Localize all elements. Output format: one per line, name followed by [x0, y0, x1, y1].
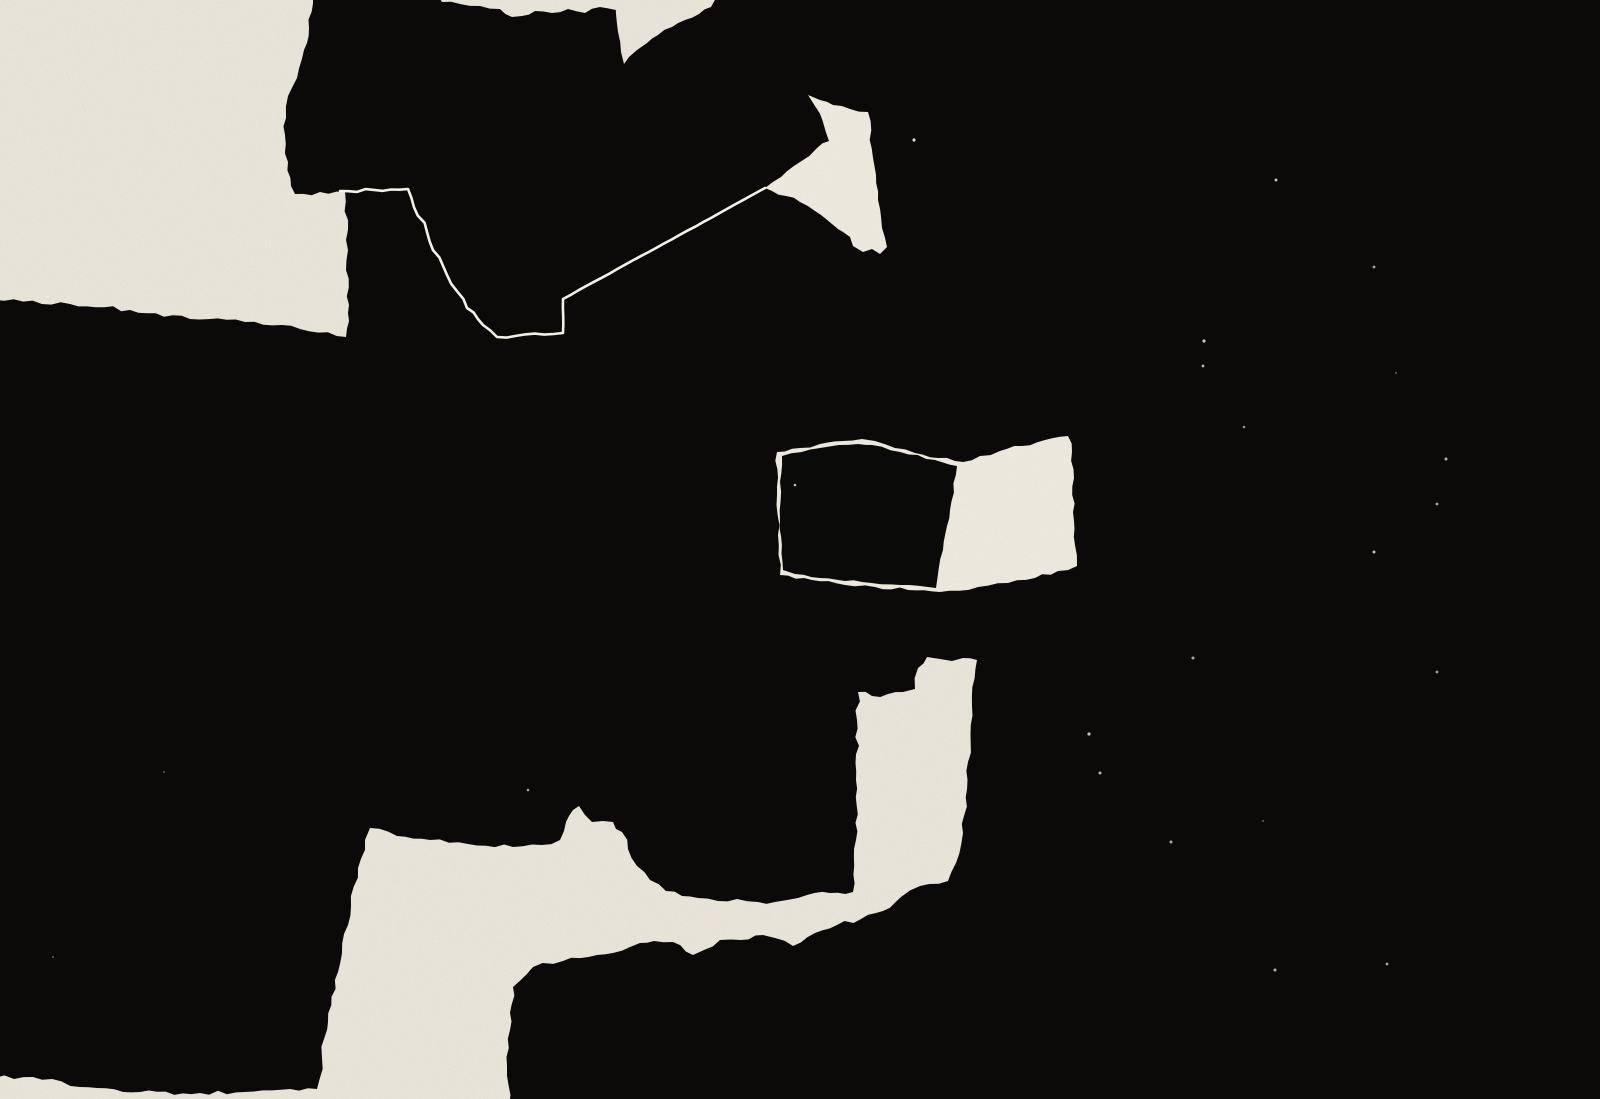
paper-speck [1202, 339, 1205, 342]
artwork-canvas [0, 0, 1600, 1099]
paper-speck [1386, 963, 1389, 966]
paper-speck [1243, 426, 1246, 429]
paper-speck [1192, 657, 1195, 660]
paper-speck [163, 771, 165, 773]
paper-speck [1373, 551, 1376, 554]
paper-speck [1170, 841, 1173, 844]
paper-speck [527, 789, 530, 792]
paper-speck [1274, 969, 1277, 972]
collage-artwork [0, 0, 1600, 1099]
paper-speck [1436, 671, 1439, 674]
ink-block-middle [780, 444, 957, 588]
paper-speck [794, 484, 797, 487]
paper-speck [1373, 266, 1376, 269]
paper-speck [1445, 458, 1448, 461]
paper-speck [1395, 372, 1397, 374]
paper-speck [1262, 820, 1264, 822]
paper-speck [52, 956, 54, 958]
paper-speck [1275, 179, 1278, 182]
paper-speck [1436, 503, 1439, 506]
paper-speck [912, 138, 915, 141]
ink-layer [780, 444, 957, 588]
paper-speck [1087, 732, 1090, 735]
paper-speck [1202, 365, 1205, 368]
paper-speck [1099, 772, 1102, 775]
